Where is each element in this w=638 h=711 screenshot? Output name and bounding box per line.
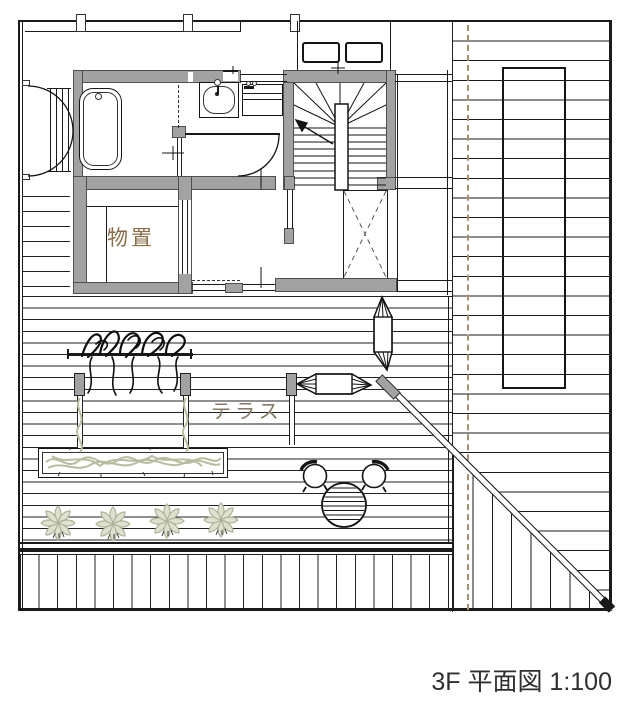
eaves-second-line	[25, 31, 240, 32]
bathtub-inner	[83, 92, 118, 166]
floor-plan-canvas: 物置 テラス 3F 平面図 1:100	[0, 0, 638, 711]
skylight-zone-left-line	[297, 21, 298, 70]
bathroom-sliding-door-dashed	[178, 85, 179, 128]
void-right-line	[387, 190, 388, 278]
wall-stair-east	[386, 70, 396, 190]
louver-slat-2	[56, 88, 57, 172]
plant-rail-tick-l	[67, 349, 69, 359]
void-x-mark	[344, 191, 386, 277]
louver-slat-1	[50, 88, 51, 172]
louver-slat-4	[68, 88, 69, 172]
drawing-title: 3F 平面図 1:100	[372, 662, 612, 698]
north-window-line-a	[240, 74, 287, 75]
stair-up-arrow	[296, 120, 333, 144]
terrace-label: テラス	[211, 395, 283, 424]
wall-stub-top	[284, 176, 295, 190]
shaft-west-line	[397, 74, 398, 291]
shaft-east-line	[447, 70, 448, 295]
shaft-line-1	[395, 74, 452, 75]
eaves-tick-3	[290, 14, 300, 32]
counter-handle	[244, 86, 254, 89]
wall-bath-divider-thin	[177, 138, 182, 176]
wall-gap-1	[188, 72, 193, 82]
counter-line-2	[243, 99, 282, 100]
skylight-zone-right-line	[390, 21, 391, 70]
terrace-bottom-thick	[18, 548, 454, 552]
plant-rail	[67, 353, 193, 356]
skylight-2	[345, 42, 383, 63]
planter-box-inner	[42, 452, 224, 474]
boundary-dashed-line	[467, 25, 469, 610]
post-support-2	[183, 396, 189, 451]
roof-inner-rect	[502, 67, 566, 389]
closet-shelf-line	[87, 206, 178, 207]
left-eaves-deck-stripes	[22, 196, 70, 294]
void-left-line	[343, 190, 344, 278]
border-left-inner	[22, 21, 23, 609]
wall-storage-bottom	[73, 282, 193, 294]
wall-stair-top	[283, 70, 396, 83]
post-support-3	[289, 396, 295, 445]
border-top	[18, 20, 612, 22]
plant-rail-tick-r	[190, 349, 192, 359]
pergola-post-3	[286, 373, 297, 396]
shaft-line-3	[395, 177, 452, 178]
hall-door	[238, 134, 279, 176]
counter-line-1	[243, 93, 282, 94]
post-support-1	[77, 396, 83, 451]
storage-sliding-door	[182, 200, 188, 274]
wash-basin-bowl	[203, 86, 235, 114]
wall-storage-left	[73, 176, 87, 294]
border-right	[609, 21, 612, 610]
eaves-step	[240, 21, 241, 32]
pergola-post-1	[74, 373, 85, 396]
eaves-tick-1	[76, 14, 86, 32]
wall-mid-band	[73, 176, 276, 190]
stub-wall-line-a	[287, 190, 288, 229]
wall-bottom-band	[275, 278, 397, 292]
wall-corridor-south-line	[185, 133, 280, 135]
door-hinge-top	[22, 80, 30, 86]
door-hinge-bottom	[22, 174, 30, 180]
louver-slat-3	[62, 88, 63, 172]
lower-fence-stripes	[20, 554, 452, 609]
border-bottom	[18, 608, 612, 611]
terrace-bottom-thin	[18, 542, 454, 544]
wall-nub	[377, 177, 396, 190]
bathtub-faucet	[95, 93, 102, 100]
window-gap	[223, 72, 238, 81]
shaft-line-4	[395, 188, 452, 189]
storage-room-label: 物置	[107, 222, 155, 252]
border-left-outer	[18, 20, 20, 610]
void-top-line	[343, 190, 388, 191]
hall-sliding-door-dashed	[192, 280, 240, 281]
window-lintel	[223, 70, 238, 72]
staircase-symbol	[294, 83, 386, 190]
shaft-line-5	[397, 280, 452, 281]
wall-stub-cap	[284, 228, 294, 244]
stub-wall-line-b	[292, 190, 293, 229]
shaft-line-6	[397, 291, 452, 292]
basin-faucet	[214, 79, 221, 86]
skylight-1	[302, 42, 340, 63]
basin-drain	[215, 92, 219, 96]
pergola-post-2	[180, 373, 191, 396]
terrace-right-edge	[448, 296, 449, 544]
eaves-tick-2	[183, 14, 193, 32]
hall-south-block	[225, 283, 243, 293]
shaft-line-2	[395, 81, 452, 82]
wall-bath-divider-block	[172, 126, 186, 138]
wall-stair-west	[283, 70, 294, 190]
